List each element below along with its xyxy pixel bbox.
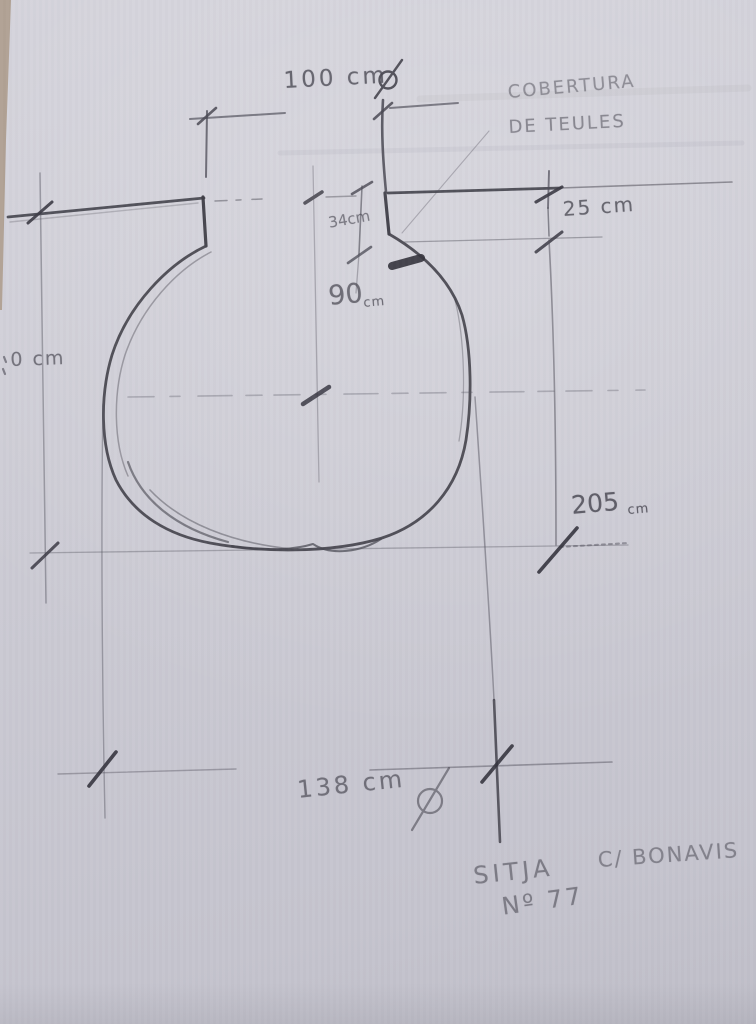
center-cross-tick xyxy=(303,387,329,404)
chamber-depth-unit: cm xyxy=(627,501,650,518)
dim138-bar-left xyxy=(58,769,236,774)
dim25-lower-line xyxy=(404,237,602,242)
dimleft-vert xyxy=(40,173,46,603)
dim100-right-leader xyxy=(382,100,386,192)
phi-symbol-bottom xyxy=(412,768,449,830)
dim138-right-vert-dark xyxy=(494,700,500,842)
pencil-smudge xyxy=(392,258,421,266)
chamber-outline xyxy=(103,234,470,551)
ground-line-right xyxy=(388,188,560,193)
neck-right-wall xyxy=(385,193,389,234)
neck-width-value: 90 xyxy=(327,278,364,312)
left-depth-dimension xyxy=(3,173,58,603)
dim138-left-vert xyxy=(102,404,105,818)
center-horizontal-dashed-line xyxy=(128,390,645,397)
photographed-sketch-page: 100 cm COBERTURA DE TEULES 34cm 90cm 25 … xyxy=(0,0,756,1024)
partial-digit-marks xyxy=(3,357,6,374)
floor-line xyxy=(30,545,628,553)
label-top-diameter: 100 cm xyxy=(283,63,388,94)
label-right-depth: 25 cm xyxy=(562,192,636,221)
ground-line-right-ext xyxy=(560,182,732,188)
label-left-depth: 0 cm xyxy=(10,347,66,371)
table-edge-wedge xyxy=(0,0,11,310)
cover-leader-line xyxy=(402,131,489,233)
dim138-right-vert xyxy=(475,397,494,700)
dim25-mid-vert xyxy=(548,208,549,236)
chamber-main-path xyxy=(103,234,470,550)
label-chamber-depth: 205 cm xyxy=(570,484,650,520)
neck-left-wall xyxy=(203,197,206,246)
dim138-left-tick xyxy=(89,752,116,786)
dim205-vert xyxy=(549,240,556,545)
label-neck-width: 90cm xyxy=(327,276,386,312)
chamber-echo-left xyxy=(116,252,211,476)
ground-gap-dashes xyxy=(215,199,262,201)
chamber-depth-value: 205 xyxy=(570,487,620,520)
dim100-right-bar xyxy=(390,103,458,108)
neck-width-unit: cm xyxy=(363,294,386,311)
dim205-bottom-tick xyxy=(539,528,577,572)
ground-gap-dash-right xyxy=(326,196,356,197)
dim25-upper-vert xyxy=(548,171,549,208)
center-vertical-line xyxy=(313,166,319,482)
dim100-left-leader xyxy=(206,111,207,177)
